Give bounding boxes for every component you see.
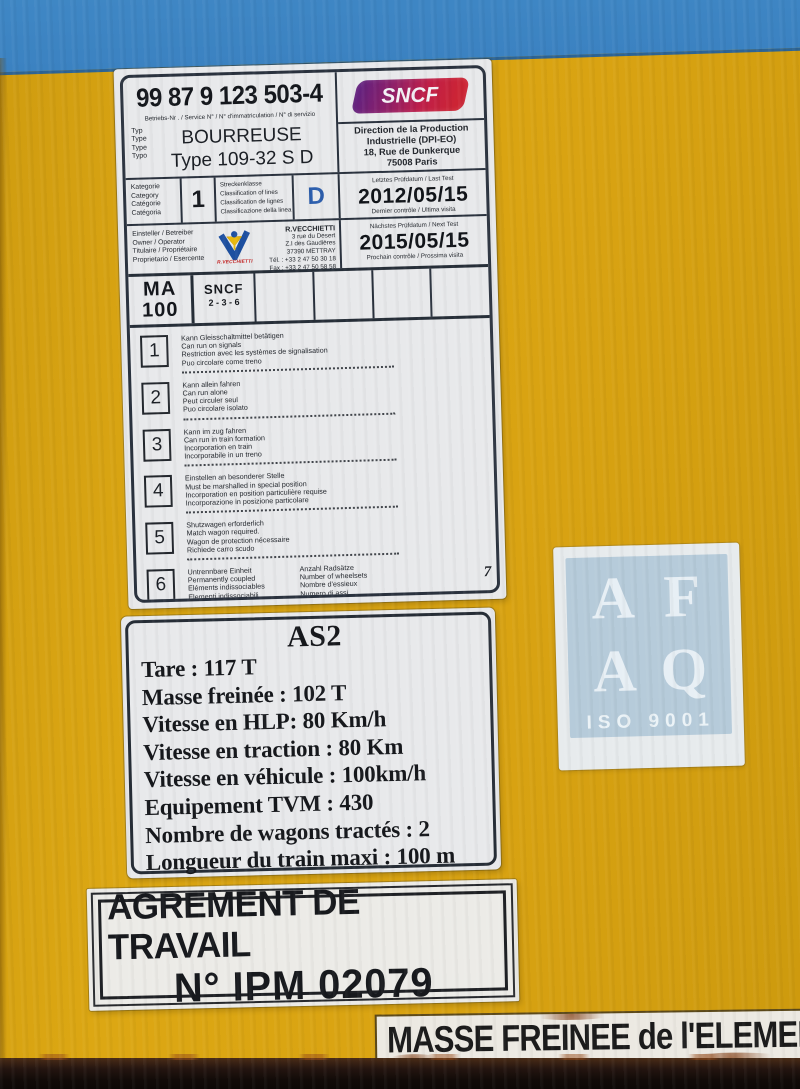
afaq-logo: A F A Q ISO 9001 — [565, 554, 732, 738]
category-label: Catégoria — [131, 209, 180, 219]
ma-row: MA 100 SNCF 2 - 3 - 6 — [128, 264, 489, 328]
next-test-date: 2015/05/15 — [341, 228, 488, 255]
direction-address: Direction de la Production Industrielle … — [338, 120, 485, 172]
wheelsets-block: Anzahl Radsätze Number of wheelsets Nomb… — [299, 561, 450, 603]
line-class-value: D — [292, 174, 339, 219]
capability-list: 1 Kann Gleisschaltmittel betätigen Can r… — [130, 318, 498, 603]
afaq-iso9001-sticker: A F A Q ISO 9001 — [553, 543, 745, 771]
as2-characteristics-plate: AS2 Tare : 117 T Masse freinée : 102 T V… — [121, 607, 501, 878]
afaq-letter: A — [590, 567, 635, 628]
sncf-logo-icon: SNCF — [351, 77, 470, 113]
uic-identification-plate: 99 87 9 123 503-4 Betriebs-Nr . / Servic… — [114, 59, 507, 609]
agrement-number: N° IPM 02079 — [174, 960, 435, 1010]
list-item: 2 Kann allein fahren Can run alone Peut … — [141, 373, 492, 422]
sncf-cell-value: 2 - 3 - 6 — [194, 297, 254, 309]
category-value: 1 — [180, 178, 217, 223]
owner-labels: Einsteller / Betreiber Owner / Operator … — [127, 224, 212, 274]
item-number: 1 — [140, 335, 169, 368]
dotted-line — [188, 601, 284, 603]
panel-edge-shadow — [0, 58, 7, 1063]
list-item: 5 Shutzwagen erforderlich Match wagon re… — [145, 513, 496, 562]
agrement-title: AGREMENT DE TRAVAIL — [107, 879, 499, 968]
photo-of-railway-machine-side: 99 87 9 123 503-4 Betriebs-Nr . / Servic… — [0, 0, 800, 1089]
item-text: Kann Gleisschaltmittel betätigen Can run… — [181, 329, 394, 368]
list-item: 3 Kann im zug fahren Can run in train fo… — [143, 420, 494, 469]
wheelsets-labels: Anzahl Radsätze Number of wheelsets Nomb… — [299, 561, 450, 598]
type-labels: Typ Type Type Typo — [131, 127, 147, 173]
type-values: BOURREUSE Type 109-32 S D — [146, 122, 337, 173]
ma-label: MA — [143, 279, 177, 301]
list-item: 4 Einstellen an besonderer Stelle Must b… — [144, 466, 495, 515]
type-label: Type — [131, 136, 146, 145]
sncf-236-cell: SNCF 2 - 3 - 6 — [193, 274, 256, 324]
type-label: Type — [132, 144, 147, 153]
empty-cell — [314, 270, 374, 320]
sncf-cell: SNCF Direction de la Production Industri… — [337, 68, 486, 172]
sncf-logo-cell: SNCF — [337, 68, 484, 124]
item-text: Shutzwagen erforderlich Match wagon requ… — [186, 516, 399, 555]
line-class-labels: Streckenklasse Classification of lines C… — [216, 175, 293, 221]
empty-cell — [431, 267, 489, 317]
list-item: 1 Kann Gleisschaltmittel betätigen Can r… — [140, 326, 491, 375]
item-number: 2 — [141, 382, 170, 415]
wheelsets-value: 7 — [483, 564, 491, 599]
item-line: Elementi indissociabili — [188, 590, 292, 601]
empty-cell — [373, 269, 433, 319]
ma-value: 100 — [142, 300, 179, 322]
sncf-cell-label: SNCF — [194, 281, 254, 298]
afaq-letter: F — [663, 565, 701, 626]
item-text: Einstellen an besonderer Stelle Must be … — [185, 469, 398, 508]
vehicle-number: 99 87 9 123 503-4 — [131, 77, 327, 113]
plate-inner-frame: AGREMENT DE TRAVAIL N° IPM 02079 — [98, 890, 508, 999]
category-cells: Kategorie Category Catégorie Catégoria 1… — [126, 174, 341, 224]
last-test-date: 2012/05/15 — [340, 182, 487, 209]
owner-label: Proprietario / Esercente — [133, 255, 212, 266]
agrement-de-travail-plate: AGREMENT DE TRAVAIL N° IPM 02079 — [87, 879, 520, 1011]
item-text: Untrennbare Einheit Permanently coupled … — [188, 566, 293, 602]
plate-frame: AS2 Tare : 117 T Masse freinée : 102 T V… — [125, 612, 497, 875]
afaq-letter: A — [592, 640, 637, 701]
list-item: 6 Untrennbare Einheit Permanently couple… — [147, 560, 498, 603]
plate-header-row: 99 87 9 123 503-4 Betriebs-Nr . / Servic… — [123, 68, 486, 178]
empty-cell — [255, 272, 315, 322]
ma-100-cell: MA 100 — [128, 275, 194, 325]
machine-type-model: Type 109-32 S D — [147, 145, 337, 173]
dotted-line — [300, 596, 446, 603]
vecchietti-logo-cell: R.VECCHIETTI — [211, 222, 258, 271]
type-row: Typ Type Type Typo BOURREUSE Type 109-32… — [124, 122, 337, 174]
vecchietti-logo-caption: R.VECCHIETTI — [217, 259, 253, 265]
owner-address: R.VECCHIETTI 3 rue du Desert Z.I des Gau… — [257, 220, 340, 270]
item-number: 4 — [144, 475, 173, 508]
owner-cells: Einsteller / Betreiber Owner / Operator … — [127, 220, 342, 274]
category-labels: Kategorie Category Catégorie Catégoria — [126, 179, 181, 224]
next-test-cell: Nächstes Prüfdatum / Next Test 2015/05/1… — [341, 216, 488, 268]
item-number: 5 — [145, 522, 174, 555]
vehicle-number-cell: 99 87 9 123 503-4 Betriebs-Nr . / Servic… — [123, 72, 340, 178]
item-number: 6 — [147, 569, 176, 602]
line-class-label: Classificazione della linea — [220, 206, 292, 217]
plate-frame: 99 87 9 123 503-4 Betriebs-Nr . / Servic… — [120, 65, 501, 603]
vecchietti-logo-icon — [215, 229, 254, 260]
item-text: Kann allein fahren Can run alone Peut ci… — [182, 375, 395, 414]
type-label: Typo — [132, 152, 147, 161]
item-number: 3 — [143, 429, 172, 462]
sncf-logo-text: SNCF — [381, 82, 439, 108]
afaq-letter: Q — [660, 638, 708, 699]
item-text: Kann im zug fahren Can run in train form… — [184, 422, 397, 461]
chassis-band — [0, 1058, 800, 1089]
iso-9001-caption: ISO 9001 — [569, 709, 732, 735]
plate-outer-frame: AGREMENT DE TRAVAIL N° IPM 02079 — [91, 883, 515, 1007]
last-test-cell: Letztes Prüfdatum / Last Test 2012/05/15… — [340, 170, 487, 218]
